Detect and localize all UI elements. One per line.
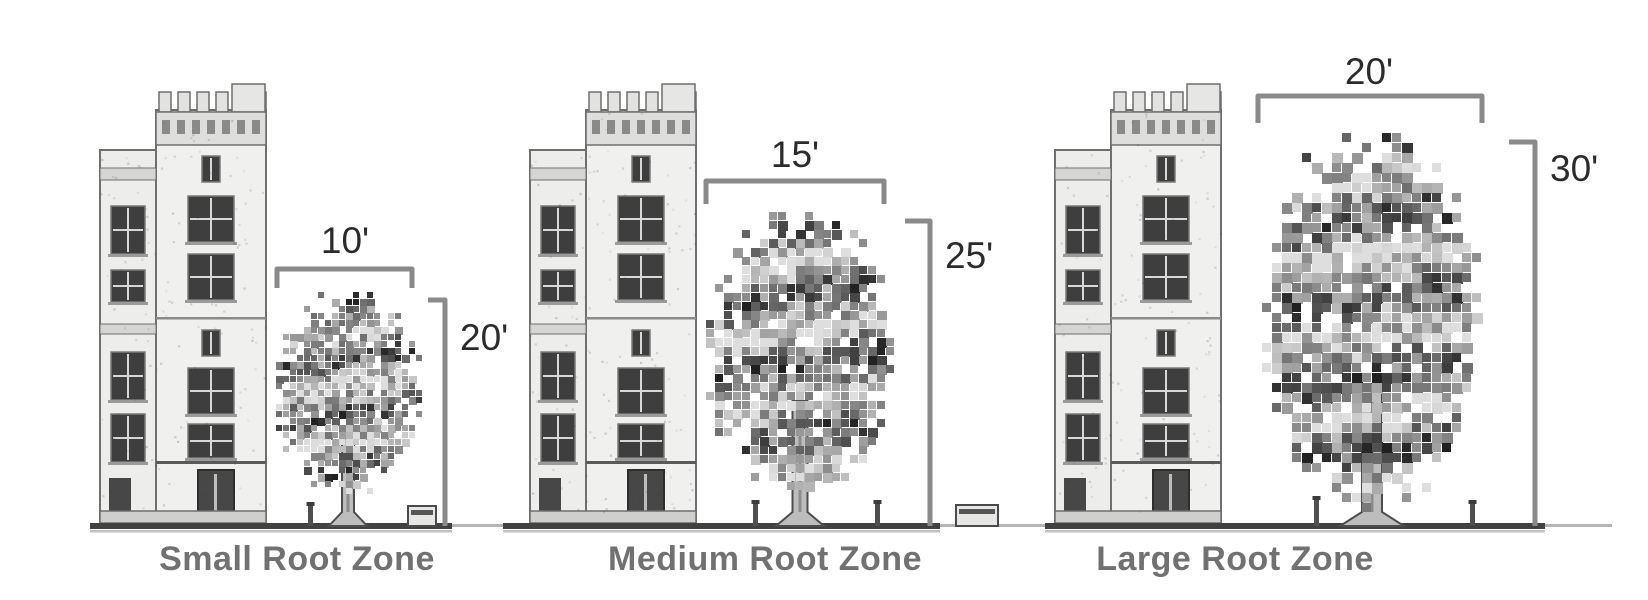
canopy-width-bracket	[706, 181, 884, 204]
caption-medium-root-zone: Medium Root Zone	[608, 540, 922, 579]
tree-height-dimension-line	[905, 221, 930, 526]
canopy-width-label: 15'	[771, 134, 819, 175]
tree-height-label: 25'	[945, 235, 993, 276]
panel-medium-root-zone: 15' 25'	[503, 84, 1063, 533]
street-furniture	[307, 502, 437, 526]
building-sketch	[100, 84, 267, 523]
building-sketch	[1055, 84, 1222, 523]
tree-height-label: 20'	[460, 317, 508, 358]
panel-large-root-zone: 20' 30'	[1045, 51, 1612, 533]
canopy-width-bracket	[277, 269, 412, 288]
tree-height-dimension-line	[428, 300, 445, 526]
building-sketch	[530, 84, 696, 523]
root-zone-comparison-diagram: 10' 20' 15' 25' 20' 30' Small Root Zone …	[0, 0, 1648, 600]
ground-line	[1045, 523, 1612, 533]
small-tree-illustration	[276, 292, 422, 526]
large-tree-illustration	[1262, 133, 1483, 526]
canopy-width-bracket	[1258, 96, 1482, 123]
canopy-width-label: 20'	[1345, 51, 1393, 92]
diagram-artwork: 10' 20' 15' 25' 20' 30'	[0, 0, 1648, 600]
tree-height-dimension-line	[1509, 142, 1535, 526]
medium-tree-illustration	[706, 212, 894, 526]
tree-height-label: 30'	[1550, 148, 1598, 189]
caption-small-root-zone: Small Root Zone	[159, 540, 435, 579]
canopy-width-label: 10'	[321, 220, 369, 261]
caption-large-root-zone: Large Root Zone	[1096, 540, 1374, 579]
panel-small-root-zone: 10' 20'	[90, 84, 575, 533]
